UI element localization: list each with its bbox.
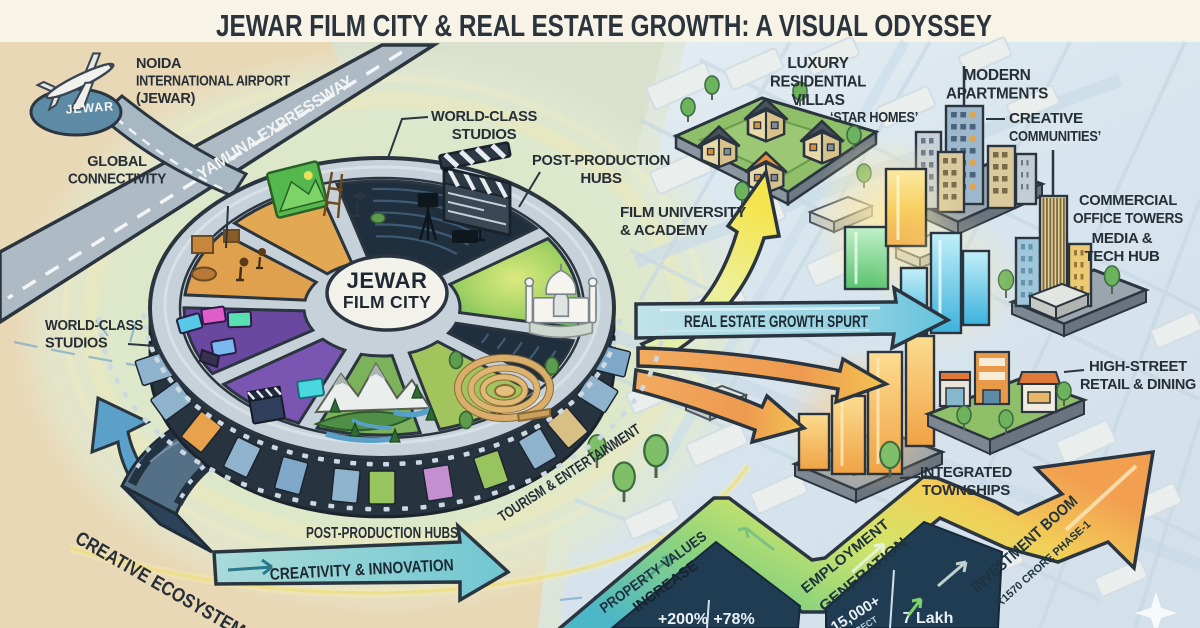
svg-text:WORLD-CLASS: WORLD-CLASS: [45, 318, 144, 334]
svg-text:HUBS: HUBS: [580, 170, 622, 187]
svg-text:STUDIOS: STUDIOS: [45, 336, 108, 352]
svg-text:& ACADEMY: & ACADEMY: [620, 222, 708, 239]
svg-text:REAL ESTATE GROWTH SPURT: REAL ESTATE GROWTH SPURT: [684, 312, 868, 331]
svg-text:‘STAR HOMES’: ‘STAR HOMES’: [830, 109, 918, 126]
svg-text:MEDIA &: MEDIA &: [1092, 230, 1153, 247]
svg-text:VILLAS: VILLAS: [791, 92, 844, 109]
svg-text:FILM UNIVERSITY: FILM UNIVERSITY: [620, 204, 746, 221]
svg-text:HIGH-STREET: HIGH-STREET: [1089, 358, 1187, 375]
svg-text:TECH HUB: TECH HUB: [1084, 248, 1160, 265]
svg-text:COMMERCIAL: COMMERCIAL: [1079, 192, 1177, 209]
svg-text:OFFICE TOWERS: OFFICE TOWERS: [1073, 210, 1183, 227]
svg-text:INTEGRATED: INTEGRATED: [920, 464, 1012, 481]
svg-text:RETAIL & DINING: RETAIL & DINING: [1080, 376, 1196, 393]
svg-text:INTERNATIONAL AIRPORT: INTERNATIONAL AIRPORT: [136, 74, 290, 90]
svg-text:APARTMENTS: APARTMENTS: [946, 86, 1048, 103]
svg-text:JEWAR: JEWAR: [347, 268, 428, 293]
svg-text:CREATIVE: CREATIVE: [1009, 110, 1083, 127]
svg-text:+200%: +200%: [658, 611, 708, 628]
svg-text:MODERN: MODERN: [963, 67, 1030, 84]
svg-text:COMMUNITIES’: COMMUNITIES’: [1009, 128, 1101, 145]
svg-text:FILM CITY: FILM CITY: [343, 292, 431, 312]
svg-text:WORLD-CLASS: WORLD-CLASS: [431, 108, 537, 125]
svg-text:POST-PRODUCTION: POST-PRODUCTION: [532, 152, 670, 169]
svg-text:JEWAR FILM CITY & REAL ESTATE: JEWAR FILM CITY & REAL ESTATE GROWTH: A …: [216, 8, 992, 43]
svg-text:LUXURY: LUXURY: [787, 55, 849, 72]
svg-text:STUDIOS: STUDIOS: [452, 126, 517, 143]
svg-text:GLOBAL: GLOBAL: [87, 154, 147, 170]
svg-text:CONNECTIVITY: CONNECTIVITY: [68, 172, 167, 188]
svg-text:NOIDA: NOIDA: [136, 56, 182, 72]
svg-text:TOWNSHIPS: TOWNSHIPS: [922, 482, 1010, 499]
svg-text:(JEWAR): (JEWAR): [136, 91, 196, 107]
svg-text:RESIDENTIAL: RESIDENTIAL: [770, 74, 866, 91]
svg-text:POST-PRODUCTION HUBS: POST-PRODUCTION HUBS: [306, 525, 458, 542]
svg-text:+78%: +78%: [713, 611, 754, 628]
